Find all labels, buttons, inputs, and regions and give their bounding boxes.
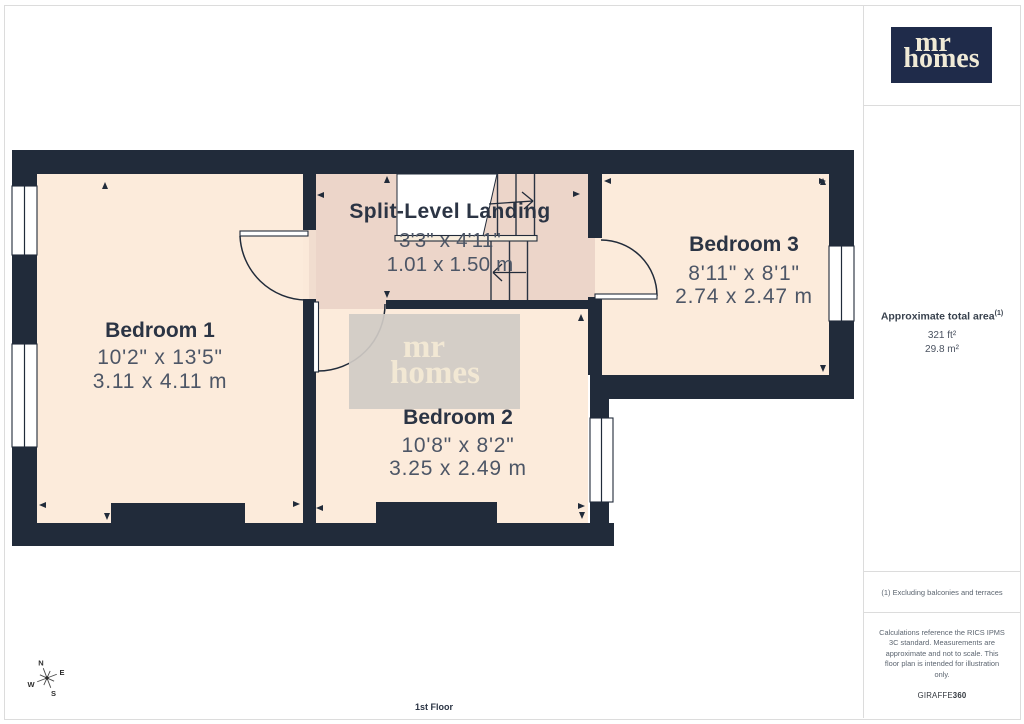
svg-text:8'11" x 8'1": 8'11" x 8'1" xyxy=(688,262,800,285)
svg-text:1st Floor: 1st Floor xyxy=(415,702,454,712)
svg-text:N: N xyxy=(38,659,43,668)
svg-text:3.11 x 4.11 m: 3.11 x 4.11 m xyxy=(93,370,228,393)
svg-text:Bedroom 3: Bedroom 3 xyxy=(689,233,799,256)
svg-text:E: E xyxy=(59,668,64,677)
svg-text:10'8" x 8'2": 10'8" x 8'2" xyxy=(401,434,514,457)
svg-text:Bedroom 1: Bedroom 1 xyxy=(105,319,215,342)
svg-text:homes: homes xyxy=(390,355,480,391)
svg-text:10'2" x 13'5": 10'2" x 13'5" xyxy=(97,346,223,369)
svg-text:3'3" x 4'11": 3'3" x 4'11" xyxy=(399,229,501,252)
svg-text:W: W xyxy=(27,680,35,689)
svg-text:Bedroom 2: Bedroom 2 xyxy=(403,406,513,429)
svg-text:S: S xyxy=(51,689,56,698)
svg-text:2.74 x 2.47 m: 2.74 x 2.47 m xyxy=(675,285,813,308)
svg-text:1.01 x 1.50 m: 1.01 x 1.50 m xyxy=(387,253,514,276)
svg-text:3.25 x 2.49 m: 3.25 x 2.49 m xyxy=(389,457,527,480)
svg-text:Split-Level Landing: Split-Level Landing xyxy=(349,200,550,223)
